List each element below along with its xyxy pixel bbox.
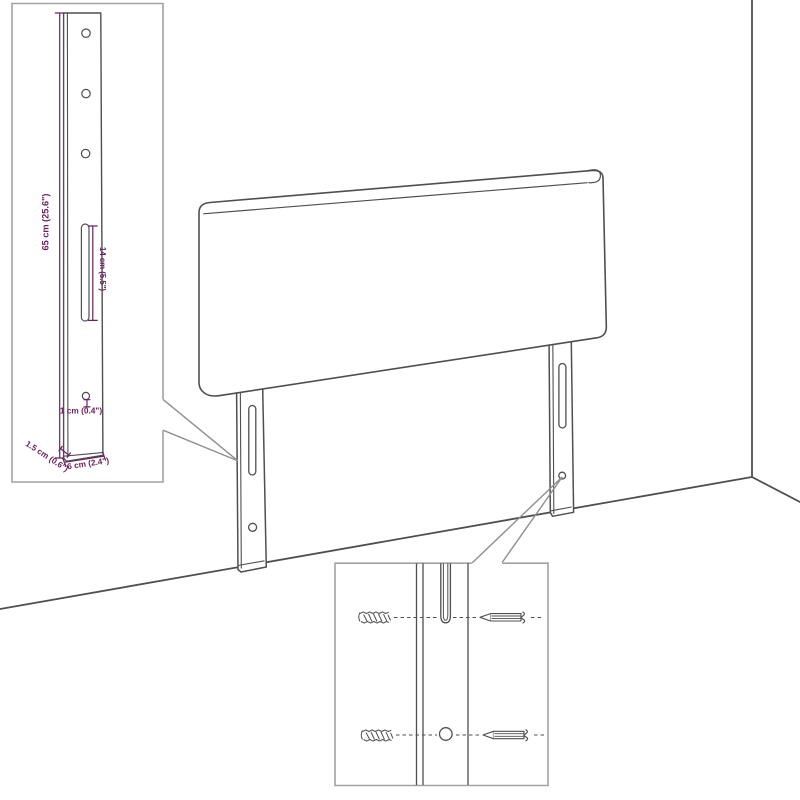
bracket-side-edge [67,13,68,457]
headboard-dimension-diagram: 65 cm (25.6") 14 cm (5.5") 1 cm (0.4") 1… [0,0,800,800]
dim-height-label: 65 cm (25.6") [41,194,51,251]
fixing-inset [335,563,548,785]
left-leg-slot [249,406,256,476]
dim-hole-offset-label: 1 cm (0.4") [60,406,102,416]
fixing-inset-box [335,563,548,785]
dim-slot-label: 14 cm (5.5") [98,247,107,291]
left-leg [237,379,267,572]
bracket-inset: 65 cm (25.6") 14 cm (5.5") 1 cm (0.4") 1… [12,4,163,483]
bracket-outline [64,13,104,461]
left-leg-hole [249,523,257,531]
right-leg [549,334,574,516]
right-leg-slot [559,364,566,429]
